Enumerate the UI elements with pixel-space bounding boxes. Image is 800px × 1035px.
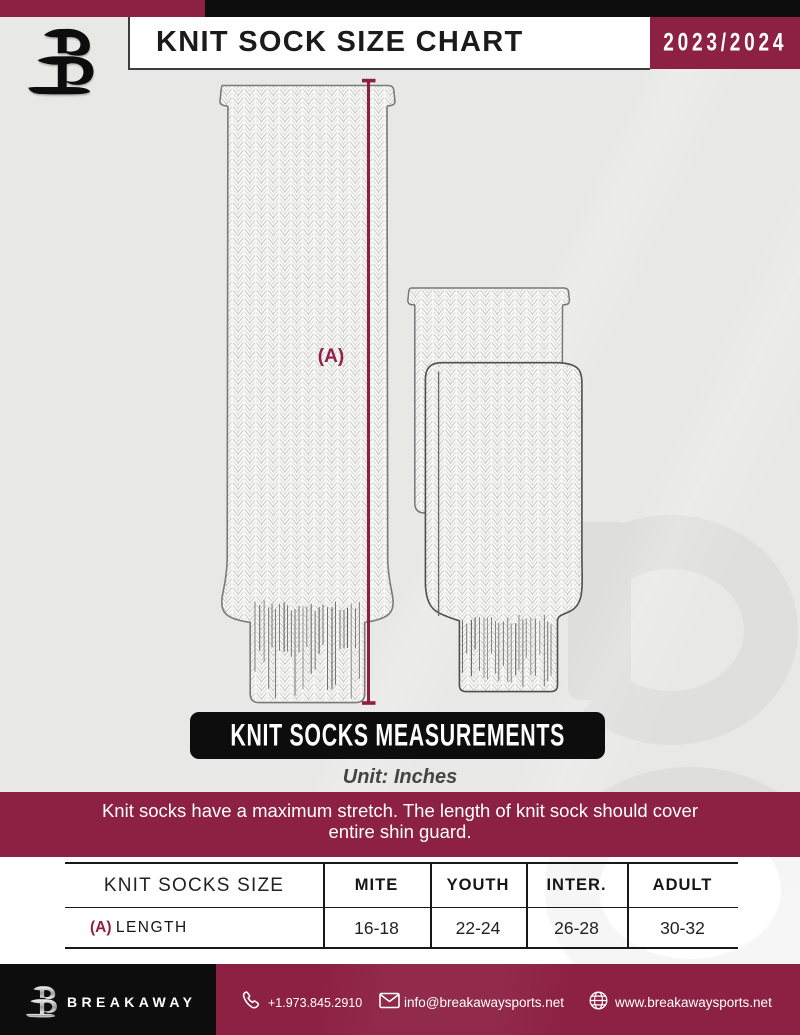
svg-text:(A): (A) (318, 346, 344, 367)
